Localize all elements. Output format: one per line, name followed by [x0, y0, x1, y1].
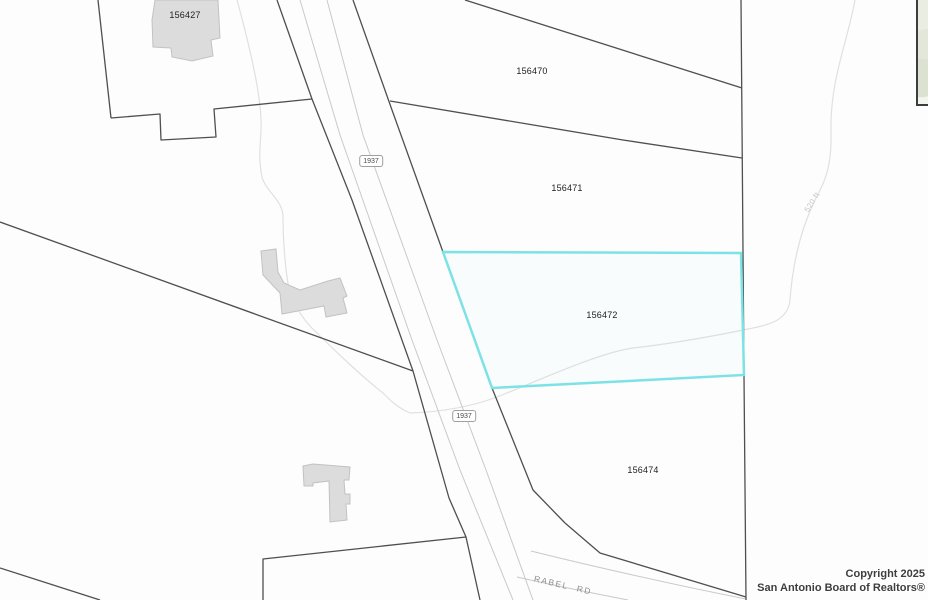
parcel-156470-north-boundary — [465, 0, 742, 88]
copyright-line-2: San Antonio Board of Realtors® — [757, 581, 925, 595]
parcel-label-156472: 156472 — [586, 310, 617, 320]
parcel-label-156470: 156470 — [516, 66, 547, 76]
parcel-label-156427: 156427 — [169, 10, 200, 20]
parcel-156470-156471-boundary — [390, 101, 742, 158]
copyright-line-1: Copyright 2025 — [757, 567, 925, 581]
rabel-rd-pavement-line-north — [531, 551, 746, 599]
parcel-156427-south-boundary — [111, 99, 312, 140]
route-shield-1937-lower: 1937 — [452, 410, 476, 422]
highlighted-parcel-outline[interactable] — [443, 252, 744, 388]
map-linework — [0, 0, 928, 600]
parcel-map-canvas[interactable]: 156427 156470 156471 156472 156474 1937 … — [0, 0, 928, 600]
parcel-label-156474: 156474 — [627, 465, 658, 475]
bottom-left-corner-boundary — [0, 568, 100, 600]
lower-left-parcel-north-boundary — [0, 222, 413, 371]
parcel-156427-west-boundary — [98, 0, 111, 118]
building-footprint — [303, 464, 350, 522]
parcel-label-156471: 156471 — [551, 183, 582, 193]
route-shield-1937-upper: 1937 — [359, 155, 383, 167]
copyright-notice: Copyright 2025 San Antonio Board of Real… — [757, 567, 925, 595]
building-footprint — [261, 249, 347, 317]
bottom-parcel-boundary — [263, 537, 466, 600]
aerial-inset-thumbnail — [916, 0, 928, 106]
